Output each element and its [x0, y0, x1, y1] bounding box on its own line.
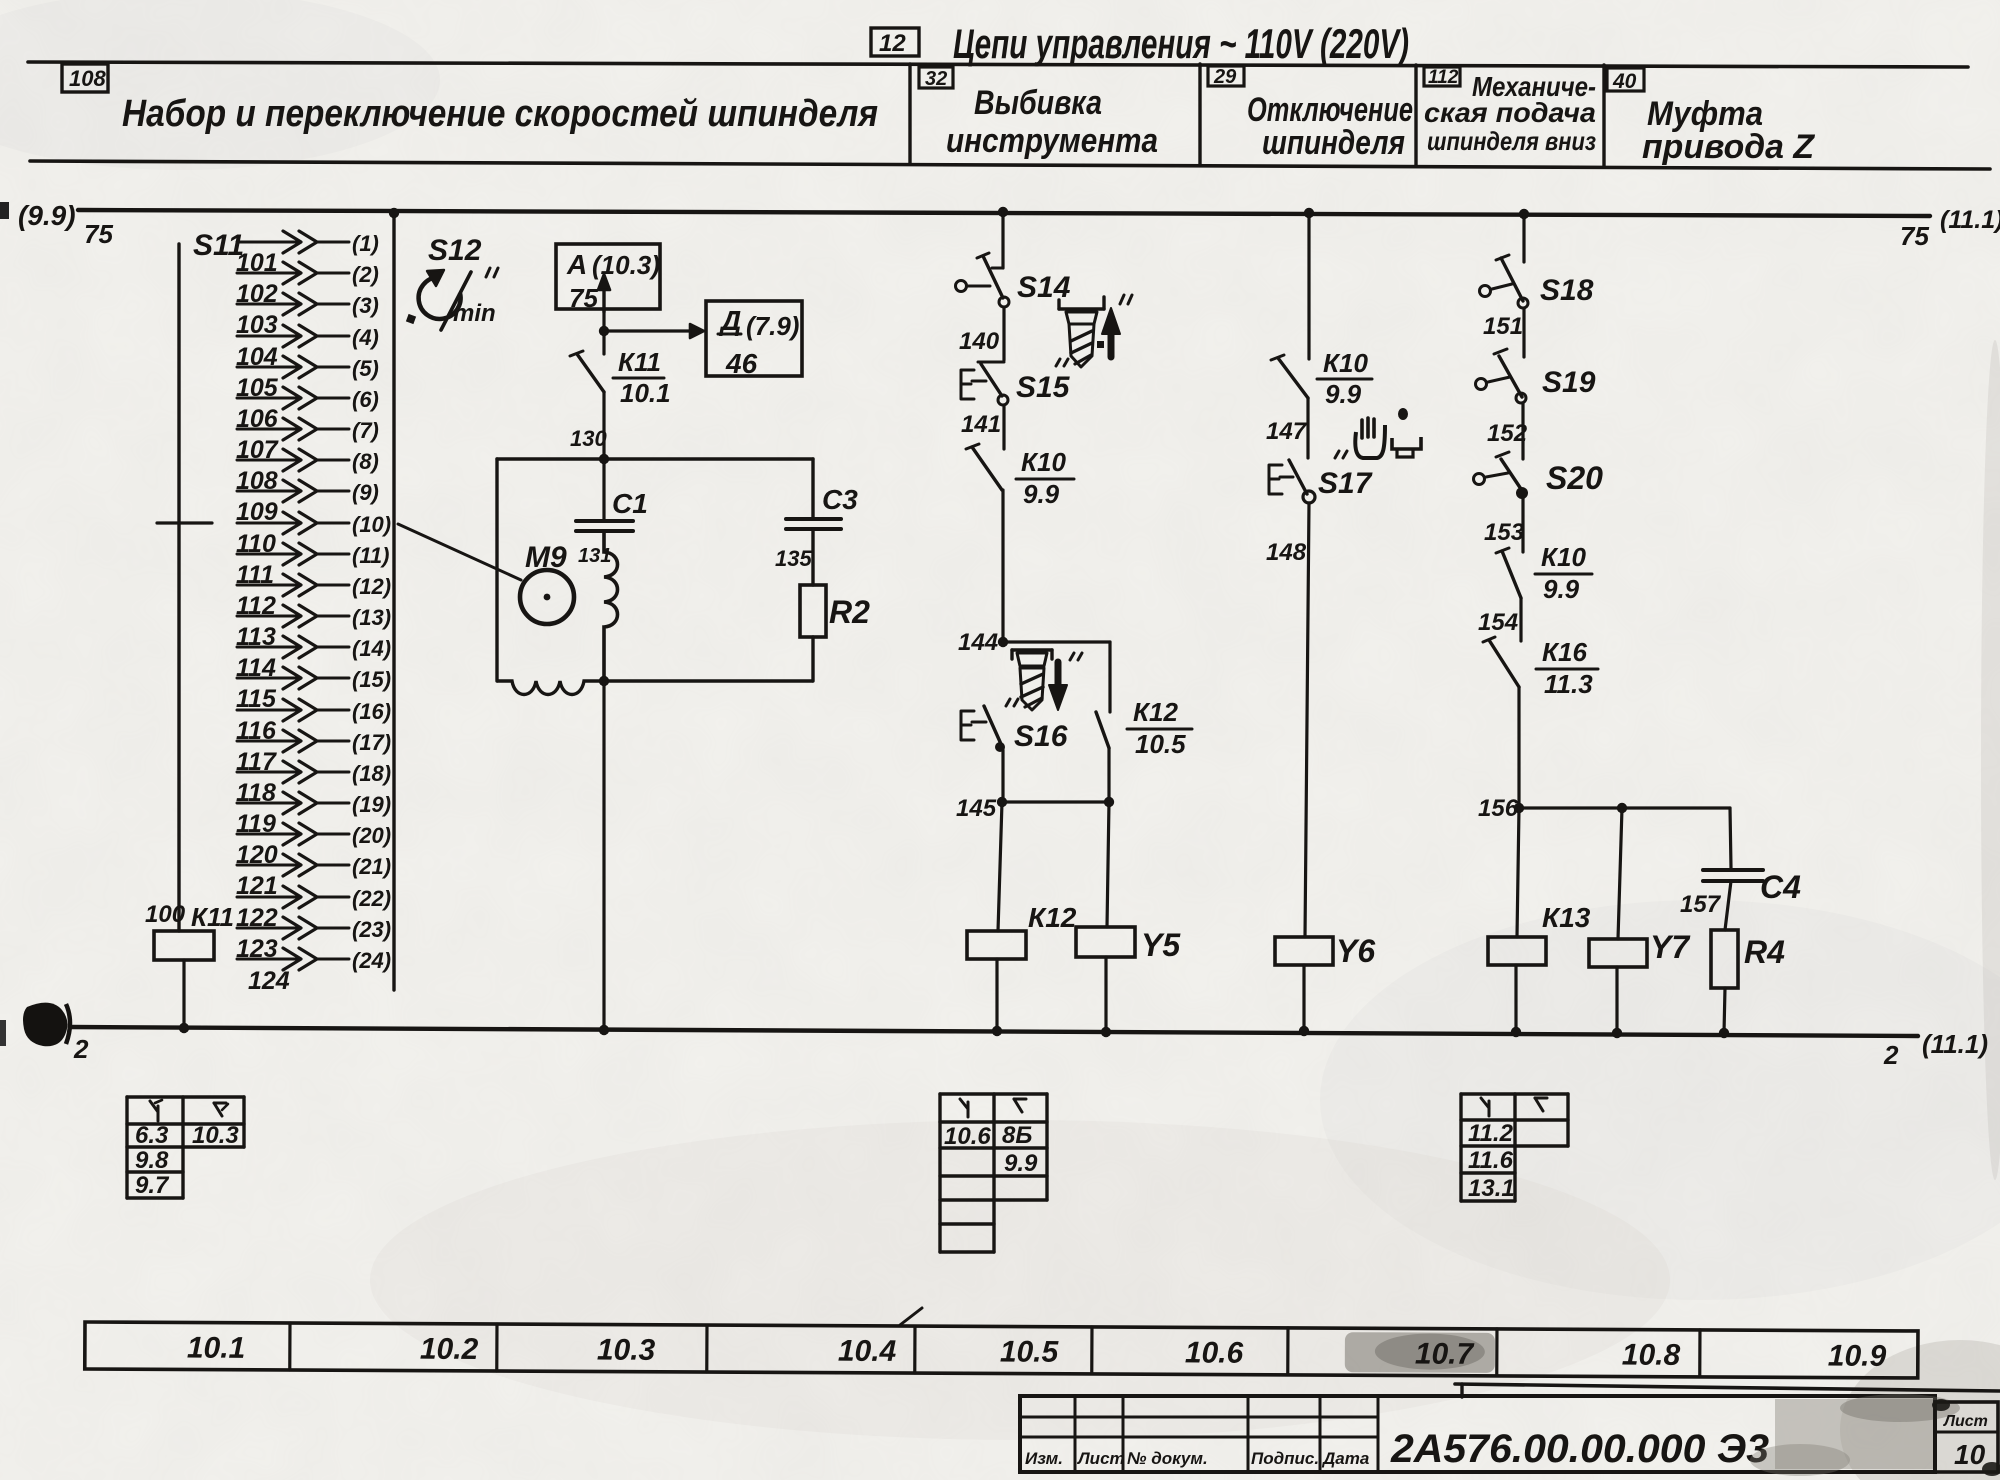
svg-text:К16: К16 — [1542, 637, 1587, 667]
svg-text:Выбивка: Выбивка — [974, 84, 1102, 122]
svg-text:10.4: 10.4 — [838, 1335, 897, 1368]
svg-text:(1): (1) — [352, 231, 379, 256]
svg-text:2А576.00.00.000 Э3: 2А576.00.00.000 Э3 — [1390, 1427, 1769, 1471]
svg-text:А: А — [566, 249, 587, 280]
svg-text:151: 151 — [1483, 313, 1523, 340]
svg-text:(11): (11) — [352, 543, 390, 568]
svg-text:шпинделя: шпинделя — [1262, 124, 1405, 162]
svg-text:12: 12 — [879, 30, 906, 57]
svg-text:75: 75 — [1900, 221, 1929, 251]
svg-text:К11: К11 — [618, 347, 661, 377]
svg-text:Подпис.: Подпис. — [1251, 1449, 1319, 1468]
svg-text:9.7: 9.7 — [135, 1172, 170, 1199]
svg-text:Y6: Y6 — [1336, 933, 1375, 969]
svg-text:К13: К13 — [1542, 902, 1591, 933]
svg-text:К12: К12 — [1028, 902, 1077, 933]
svg-text:11.3: 11.3 — [1544, 669, 1593, 699]
svg-text:145: 145 — [956, 795, 997, 822]
svg-text:112: 112 — [1428, 67, 1459, 88]
svg-text:(10): (10) — [352, 512, 391, 537]
svg-text:Д: Д — [719, 305, 741, 336]
svg-text:К12: К12 — [1133, 697, 1178, 727]
svg-text:10.2: 10.2 — [420, 1333, 479, 1366]
svg-text:Дата: Дата — [1321, 1449, 1369, 1468]
svg-text:(2): (2) — [352, 262, 379, 287]
svg-text:К10: К10 — [1021, 447, 1066, 477]
svg-text:(7.9): (7.9) — [746, 311, 799, 341]
svg-text:Набор и переключение скорост: Набор и переключение скоростей шпинделя — [122, 93, 878, 135]
svg-text:(18): (18) — [352, 761, 391, 786]
svg-text:(7): (7) — [352, 418, 379, 443]
svg-text:75: 75 — [84, 219, 113, 249]
svg-text:(21): (21) — [352, 854, 391, 879]
svg-text:29: 29 — [1213, 66, 1237, 88]
svg-text:инструмента: инструмента — [946, 122, 1158, 160]
svg-text:10.8: 10.8 — [1622, 1339, 1681, 1372]
svg-text:(22): (22) — [352, 886, 391, 911]
svg-text:(14): (14) — [352, 636, 391, 661]
svg-text:S17: S17 — [1318, 467, 1373, 500]
svg-text:10.1: 10.1 — [187, 1331, 246, 1364]
svg-text:(11.1): (11.1) — [1940, 206, 2000, 234]
svg-text:9.9: 9.9 — [1543, 574, 1580, 604]
svg-text:Y5: Y5 — [1141, 927, 1181, 963]
svg-text:2: 2 — [1883, 1040, 1899, 1070]
svg-text:(11.1): (11.1) — [1922, 1029, 1988, 1059]
svg-text:(5): (5) — [352, 356, 379, 381]
svg-text:156: 156 — [1478, 795, 1519, 822]
svg-text:10.3: 10.3 — [192, 1122, 239, 1149]
svg-text:С4: С4 — [1760, 869, 1801, 905]
svg-text:6.3: 6.3 — [135, 1122, 169, 1149]
svg-text:К11: К11 — [191, 902, 234, 932]
svg-text:min: min — [453, 300, 496, 327]
svg-text:S20: S20 — [1546, 460, 1603, 496]
svg-text:R4: R4 — [1744, 934, 1785, 970]
svg-text:8Б: 8Б — [1002, 1122, 1032, 1149]
svg-text:S12: S12 — [428, 234, 482, 267]
svg-text:75: 75 — [569, 283, 598, 313]
svg-text:(19): (19) — [352, 792, 391, 817]
svg-text:№ докум.: № докум. — [1127, 1449, 1208, 1468]
svg-text:шпинделя вниз: шпинделя вниз — [1427, 126, 1596, 156]
svg-text:10.6: 10.6 — [944, 1123, 991, 1150]
svg-text:9.9: 9.9 — [1325, 379, 1362, 409]
svg-text:(6): (6) — [352, 387, 379, 412]
svg-text:S16: S16 — [1014, 720, 1068, 753]
svg-text:9.9: 9.9 — [1004, 1150, 1038, 1177]
svg-text:157: 157 — [1680, 891, 1722, 918]
svg-text:(20): (20) — [352, 823, 391, 848]
svg-text:(8): (8) — [352, 449, 379, 474]
svg-text:148: 148 — [1266, 539, 1307, 566]
svg-text:100: 100 — [145, 901, 186, 928]
svg-text:10.7: 10.7 — [1415, 1337, 1475, 1370]
svg-text:10.3: 10.3 — [597, 1334, 656, 1367]
svg-text:S18: S18 — [1540, 274, 1594, 307]
svg-text:154: 154 — [1478, 609, 1518, 636]
svg-text:С3: С3 — [822, 484, 858, 515]
svg-text:9.8: 9.8 — [135, 1147, 169, 1174]
svg-text:2: 2 — [73, 1034, 89, 1064]
svg-text:9.9: 9.9 — [1023, 479, 1060, 509]
svg-text:(16): (16) — [352, 699, 391, 724]
svg-text:Лист: Лист — [1943, 1413, 1988, 1430]
svg-text:(15): (15) — [352, 667, 391, 692]
svg-text:ская подача: ская подача — [1424, 97, 1596, 128]
svg-text:153: 153 — [1484, 519, 1525, 546]
svg-text:Цепи управления ~ 110V (220V): Цепи управления ~ 110V (220V) — [953, 20, 1409, 67]
svg-text:10.6: 10.6 — [1185, 1336, 1244, 1369]
svg-text:Лист: Лист — [1076, 1449, 1125, 1468]
svg-text:К10: К10 — [1541, 542, 1586, 572]
svg-text:(24): (24) — [352, 948, 391, 973]
svg-text:10.1: 10.1 — [620, 378, 671, 408]
svg-text:32: 32 — [925, 68, 947, 90]
svg-text:46: 46 — [725, 348, 758, 379]
svg-text:(13): (13) — [352, 605, 391, 630]
svg-text:(23): (23) — [352, 917, 391, 942]
svg-text:(3): (3) — [352, 293, 379, 318]
svg-text:11.2: 11.2 — [1468, 1120, 1514, 1147]
svg-text:147: 147 — [1266, 418, 1308, 445]
svg-text:Изм.: Изм. — [1025, 1449, 1063, 1468]
svg-text:S14: S14 — [1017, 271, 1071, 304]
svg-text:141: 141 — [961, 411, 1001, 438]
svg-text:S15: S15 — [1016, 371, 1071, 404]
svg-text:10.9: 10.9 — [1828, 1340, 1887, 1373]
svg-text:131: 131 — [578, 545, 611, 567]
svg-text:135: 135 — [775, 546, 812, 571]
svg-text:(12): (12) — [352, 574, 391, 599]
svg-text:Y7: Y7 — [1650, 929, 1691, 965]
svg-text:40: 40 — [1612, 70, 1637, 93]
svg-text:С1: С1 — [612, 488, 648, 519]
svg-text:(4): (4) — [352, 325, 379, 350]
svg-text:11.6: 11.6 — [1468, 1147, 1514, 1174]
svg-text:(9.9): (9.9) — [18, 200, 76, 231]
svg-text:привода Z: привода Z — [1642, 128, 1815, 166]
svg-text:124: 124 — [248, 967, 290, 995]
svg-text:R2: R2 — [829, 594, 870, 630]
svg-text:10: 10 — [1954, 1439, 1986, 1470]
svg-text:10.5: 10.5 — [1000, 1335, 1060, 1368]
svg-text:10.5: 10.5 — [1135, 729, 1186, 759]
svg-text:140: 140 — [959, 328, 1000, 355]
svg-text:144: 144 — [958, 629, 998, 656]
svg-text:130: 130 — [570, 426, 607, 451]
svg-text:(9): (9) — [352, 480, 379, 505]
svg-text:(17): (17) — [352, 730, 391, 755]
svg-text:13.1: 13.1 — [1468, 1175, 1515, 1202]
svg-text:S19: S19 — [1542, 366, 1596, 399]
svg-text:108: 108 — [69, 66, 106, 91]
svg-text:К10: К10 — [1323, 348, 1368, 378]
